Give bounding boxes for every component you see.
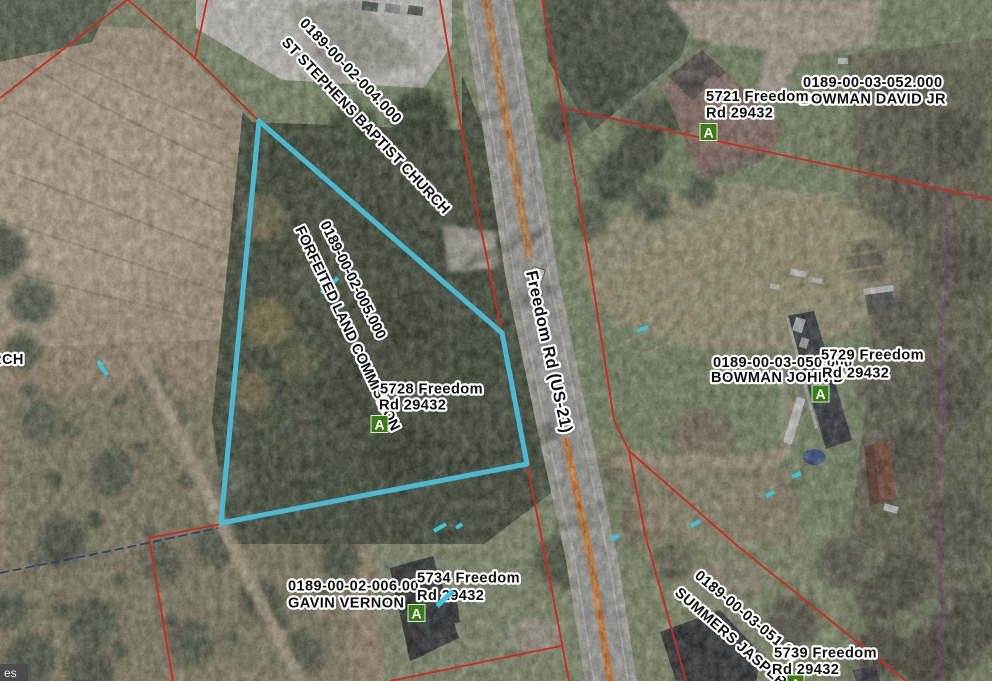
svg-text:5728 Freedom: 5728 Freedom xyxy=(380,382,483,398)
svg-text:A: A xyxy=(412,606,422,622)
svg-text:A: A xyxy=(816,386,826,402)
svg-text:A: A xyxy=(375,417,385,433)
svg-text:Rd 29432: Rd 29432 xyxy=(772,662,839,678)
svg-text:A: A xyxy=(704,125,714,141)
svg-text:RCH: RCH xyxy=(0,352,24,368)
svg-text:Rd 29432: Rd 29432 xyxy=(706,106,773,122)
svg-text:GAVIN VERNON: GAVIN VERNON xyxy=(288,596,404,612)
svg-text:5739 Freedom: 5739 Freedom xyxy=(774,646,877,662)
svg-text:A: A xyxy=(791,676,801,681)
svg-text:5729 Freedom: 5729 Freedom xyxy=(821,348,924,364)
svg-text:Rd 29432: Rd 29432 xyxy=(379,398,446,414)
svg-text:0189-00-03-052.000: 0189-00-03-052.000 xyxy=(803,75,942,91)
svg-text:BOWMAN DAVID JR: BOWMAN DAVID JR xyxy=(800,92,946,108)
svg-text:Rd 29432: Rd 29432 xyxy=(822,366,889,382)
svg-text:5734 Freedom: 5734 Freedom xyxy=(417,571,520,587)
svg-text:5721 Freedom: 5721 Freedom xyxy=(706,89,809,105)
svg-text:es: es xyxy=(4,666,17,680)
svg-text:0189-00-02-006.00: 0189-00-02-006.00 xyxy=(288,579,419,595)
